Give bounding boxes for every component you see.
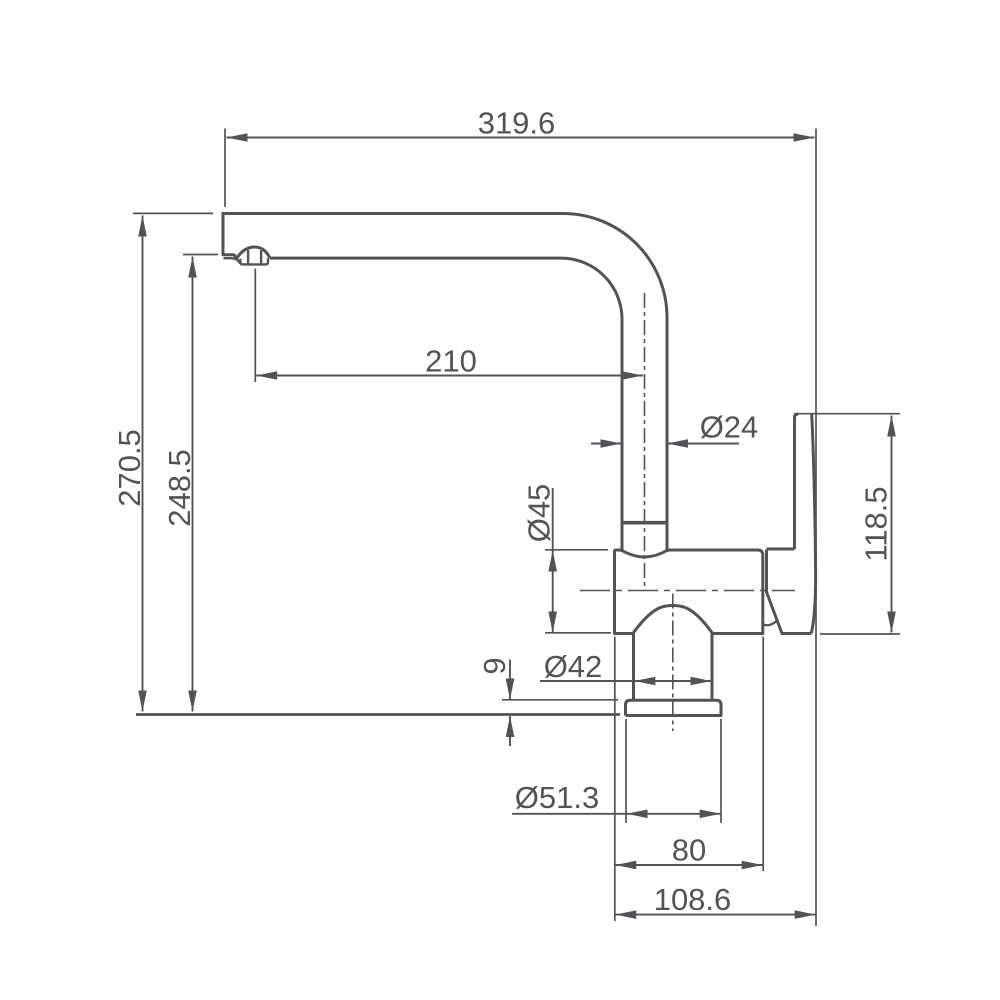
svg-text:118.5: 118.5	[859, 486, 894, 561]
svg-text:Ø24: Ø24	[700, 410, 759, 445]
svg-text:248.5: 248.5	[162, 449, 197, 527]
svg-text:Ø42: Ø42	[544, 649, 603, 684]
svg-text:270.5: 270.5	[112, 429, 147, 507]
svg-text:210: 210	[425, 344, 477, 379]
svg-text:Ø51.3: Ø51.3	[515, 780, 599, 815]
svg-text:319.6: 319.6	[478, 106, 556, 141]
svg-text:Ø45: Ø45	[522, 484, 557, 543]
svg-text:108.6: 108.6	[654, 882, 732, 917]
svg-text:80: 80	[672, 833, 706, 868]
svg-text:9: 9	[477, 657, 512, 674]
